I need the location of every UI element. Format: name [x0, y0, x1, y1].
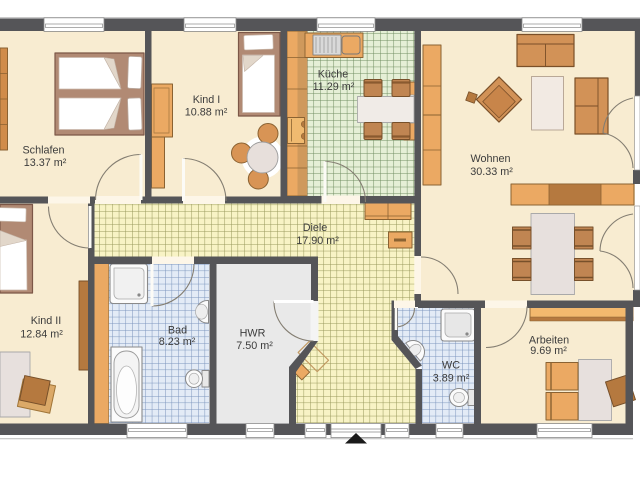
svg-text:Diele: Diele — [303, 222, 328, 234]
svg-text:Wohnen: Wohnen — [470, 153, 510, 165]
svg-text:12.84 m²: 12.84 m² — [20, 329, 63, 341]
svg-text:Küche: Küche — [318, 69, 349, 81]
svg-text:10.88 m²: 10.88 m² — [185, 107, 228, 119]
svg-text:Schlafen: Schlafen — [22, 145, 64, 157]
svg-text:Bad: Bad — [168, 325, 187, 337]
svg-text:WC: WC — [442, 360, 460, 372]
svg-text:3.89 m²: 3.89 m² — [433, 373, 470, 385]
svg-text:9.69 m²: 9.69 m² — [530, 345, 567, 357]
svg-text:HWR: HWR — [240, 328, 266, 340]
svg-text:30.33 m²: 30.33 m² — [470, 166, 513, 178]
svg-text:Kind I: Kind I — [193, 94, 221, 106]
svg-text:13.37 m²: 13.37 m² — [24, 157, 67, 169]
svg-text:11.29 m²: 11.29 m² — [313, 81, 355, 93]
svg-text:8.23 m²: 8.23 m² — [159, 336, 196, 348]
svg-text:17.90 m²: 17.90 m² — [296, 235, 339, 247]
svg-text:7.50 m²: 7.50 m² — [236, 340, 273, 352]
svg-text:Kind II: Kind II — [31, 315, 62, 327]
